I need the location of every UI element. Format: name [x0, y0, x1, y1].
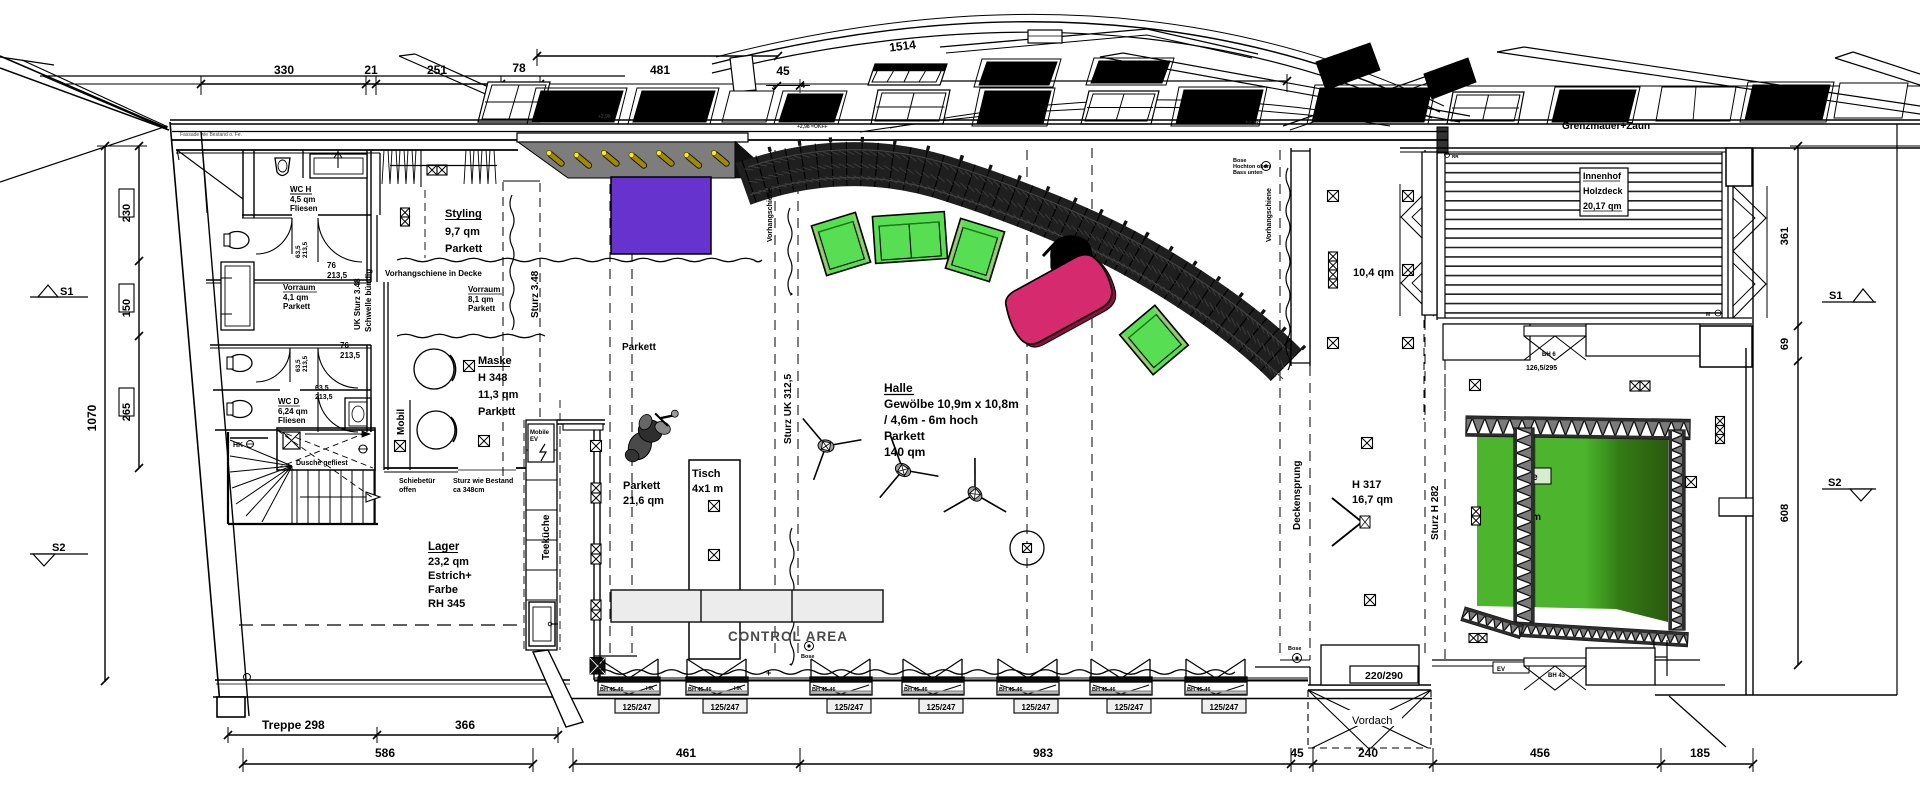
svg-text:185: 185: [1690, 746, 1710, 760]
svg-text:BH 45-46: BH 45-46: [999, 687, 1023, 693]
svg-text:Gewölbe 10,9m x 10,8m: Gewölbe 10,9m x 10,8m: [884, 397, 1019, 411]
svg-text:HK: HK: [233, 442, 243, 449]
svg-text:Sturz UK 312,5: Sturz UK 312,5: [783, 374, 794, 444]
svg-text:10,4 qm: 10,4 qm: [1353, 267, 1394, 279]
svg-text:361: 361: [1779, 227, 1791, 245]
svg-text:Schwelle bündig: Schwelle bündig: [364, 269, 373, 332]
svg-text:Estrich+: Estrich+: [428, 570, 472, 582]
svg-text:63,5: 63,5: [315, 385, 329, 392]
svg-text:4: 4: [772, 85, 776, 92]
svg-text:Teeküche: Teeküche: [541, 514, 552, 560]
svg-text:125/247: 125/247: [1022, 703, 1051, 712]
svg-text:213,5: 213,5: [302, 241, 309, 258]
svg-text:213,5: 213,5: [340, 351, 361, 360]
svg-text:BH 45-46: BH 45-46: [600, 687, 624, 693]
svg-text:608: 608: [1779, 504, 1791, 522]
svg-text:213,5: 213,5: [302, 355, 309, 372]
svg-text:Sturz H 282: Sturz H 282: [1430, 485, 1441, 540]
svg-text:125/247: 125/247: [1210, 703, 1239, 712]
svg-text:456: 456: [1530, 746, 1550, 760]
svg-text:HK: HK: [734, 686, 742, 692]
svg-text:Halle: Halle: [884, 381, 913, 395]
svg-text:150: 150: [121, 299, 133, 317]
svg-text:481: 481: [650, 63, 670, 77]
svg-text:4x1 m: 4x1 m: [692, 483, 723, 495]
svg-text:6,24 qm: 6,24 qm: [278, 407, 308, 416]
svg-text:BH 45-46: BH 45-46: [1092, 687, 1116, 693]
svg-text:BH 6: BH 6: [1542, 352, 1556, 358]
svg-text:Fliesen: Fliesen: [278, 416, 306, 425]
svg-text:BH 45-46: BH 45-46: [904, 687, 928, 693]
svg-text:78: 78: [512, 61, 526, 75]
svg-text:23,2 qm: 23,2 qm: [428, 556, 469, 568]
svg-text:M: M: [1706, 312, 1710, 318]
svg-text:+2,98: +2,98: [598, 114, 611, 120]
svg-text:Mobil: Mobil: [396, 409, 407, 435]
svg-text:EV: EV: [530, 437, 538, 443]
svg-text:Fliesen: Fliesen: [290, 204, 318, 213]
svg-text:HK: HK: [646, 686, 654, 692]
svg-text:4,1 qm: 4,1 qm: [283, 293, 308, 302]
svg-text:8,1 qm: 8,1 qm: [468, 295, 493, 304]
svg-text:Bose: Bose: [801, 654, 814, 660]
svg-text:H 348: H 348: [478, 372, 507, 384]
svg-text:Mobile: Mobile: [530, 430, 550, 436]
svg-text:140 qm: 140 qm: [884, 445, 925, 459]
svg-text:WC H: WC H: [290, 185, 312, 194]
svg-text:230: 230: [121, 204, 133, 222]
svg-text:/ 4,6m - 6m hoch: / 4,6m - 6m hoch: [884, 413, 978, 427]
svg-text:983: 983: [1033, 746, 1053, 760]
svg-text:RH 345: RH 345: [428, 598, 465, 610]
svg-text:Vorhangschiene in Decke: Vorhangschiene in Decke: [385, 269, 482, 278]
svg-text:+2,98: +2,98: [1245, 120, 1261, 126]
svg-text:Tisch: Tisch: [692, 468, 721, 480]
svg-text:Deckensprung: Deckensprung: [1292, 461, 1303, 530]
svg-text:265: 265: [121, 403, 133, 421]
svg-text:offen: offen: [399, 487, 416, 494]
svg-text:Parkett: Parkett: [468, 304, 495, 313]
svg-text:9,7 qm: 9,7 qm: [445, 226, 480, 238]
svg-text:1070: 1070: [85, 404, 99, 431]
svg-text:Lager: Lager: [428, 541, 460, 553]
svg-text:63,5: 63,5: [295, 359, 302, 372]
svg-text:125/247: 125/247: [927, 703, 956, 712]
svg-text:586: 586: [375, 746, 395, 760]
svg-text:+2,98 =OKFF: +2,98 =OKFF: [797, 124, 828, 130]
svg-text:16,7 qm: 16,7 qm: [1352, 494, 1393, 506]
svg-text:Parkett: Parkett: [884, 429, 925, 443]
svg-text:BH 43: BH 43: [1548, 673, 1566, 679]
svg-text:Styling: Styling: [445, 208, 482, 220]
svg-text:Vordach: Vordach: [1352, 715, 1392, 727]
svg-text:4,5 qm: 4,5 qm: [290, 195, 315, 204]
svg-text:76: 76: [340, 341, 349, 350]
svg-text:Treppe 298: Treppe 298: [262, 718, 325, 732]
svg-text:Grenzmauer+Zaun: Grenzmauer+Zaun: [1562, 121, 1650, 132]
svg-text:125/247: 125/247: [835, 703, 864, 712]
svg-text:S1: S1: [1829, 290, 1842, 302]
svg-text:UK Sturz 3.48: UK Sturz 3.48: [353, 278, 362, 330]
svg-text:BH 45-46: BH 45-46: [812, 687, 836, 693]
svg-text:4: 4: [801, 83, 805, 90]
svg-text:Vorhangschiene: Vorhangschiene: [1266, 188, 1273, 242]
svg-text:11,3 qm: 11,3 qm: [478, 389, 519, 401]
svg-text:ca 348cm: ca 348cm: [453, 487, 485, 494]
svg-text:20,17 qm: 20,17 qm: [1583, 201, 1622, 211]
svg-text:Bass unten: Bass unten: [1233, 170, 1263, 176]
svg-text:69: 69: [1779, 338, 1791, 350]
svg-text:330: 330: [274, 63, 294, 77]
svg-text:366: 366: [455, 718, 475, 732]
svg-text:76: 76: [327, 261, 336, 270]
svg-text:S2: S2: [52, 542, 65, 554]
svg-text:Parkett: Parkett: [283, 302, 310, 311]
svg-text:Bose: Bose: [1288, 646, 1301, 652]
svg-text:Vorraum: Vorraum: [283, 283, 315, 292]
svg-text:461: 461: [676, 746, 696, 760]
svg-text:EV: EV: [1497, 667, 1505, 673]
svg-text:251: 251: [427, 63, 447, 77]
svg-text:BH 45-46: BH 45-46: [688, 687, 712, 693]
svg-text:S2: S2: [1828, 477, 1841, 489]
svg-text:Dusche gefliest: Dusche gefliest: [296, 460, 348, 467]
svg-text:220/290: 220/290: [1365, 670, 1403, 682]
svg-text:Holzdeck: Holzdeck: [1583, 186, 1624, 196]
svg-text:Parkett: Parkett: [623, 480, 661, 492]
svg-text:126,5/295: 126,5/295: [1526, 365, 1557, 372]
svg-text:Fassade wie Bestand o. Fe.: Fassade wie Bestand o. Fe.: [180, 132, 242, 138]
svg-text:WC D: WC D: [278, 397, 300, 406]
svg-text:Vorhangschiene: Vorhangschiene: [767, 188, 774, 242]
svg-text:213,5: 213,5: [315, 394, 333, 401]
svg-text:21: 21: [364, 63, 378, 77]
svg-text:Sturz wie Bestand: Sturz wie Bestand: [453, 478, 513, 485]
svg-text:Parkett: Parkett: [478, 406, 516, 418]
svg-text:125/247: 125/247: [623, 703, 652, 712]
svg-text:Farbe: Farbe: [428, 584, 458, 596]
svg-text:21,6 qm: 21,6 qm: [623, 495, 664, 507]
svg-text:Sturz 3.48: Sturz 3.48: [530, 270, 541, 318]
svg-text:Innenhof: Innenhof: [1583, 171, 1622, 181]
svg-text:RR: RR: [1452, 154, 1459, 159]
svg-text:S1: S1: [60, 286, 73, 298]
svg-text:Schiebetür: Schiebetür: [399, 478, 435, 485]
svg-text:Parkett: Parkett: [445, 243, 483, 255]
svg-text:125/247: 125/247: [711, 703, 740, 712]
svg-text:H 317: H 317: [1352, 479, 1381, 491]
svg-text:Maske: Maske: [478, 355, 512, 367]
svg-text:213,5: 213,5: [327, 271, 348, 280]
svg-text:Parkett: Parkett: [622, 342, 657, 353]
svg-text:BH 45-46: BH 45-46: [1187, 687, 1211, 693]
svg-text:CONTROL AREA: CONTROL AREA: [728, 629, 848, 644]
svg-text:240: 240: [1358, 746, 1378, 760]
svg-text:45: 45: [1290, 746, 1304, 760]
svg-text:125/247: 125/247: [1115, 703, 1144, 712]
svg-text:Vorraum: Vorraum: [468, 285, 500, 294]
svg-text:63,5: 63,5: [295, 245, 302, 258]
svg-text:45: 45: [776, 64, 790, 78]
